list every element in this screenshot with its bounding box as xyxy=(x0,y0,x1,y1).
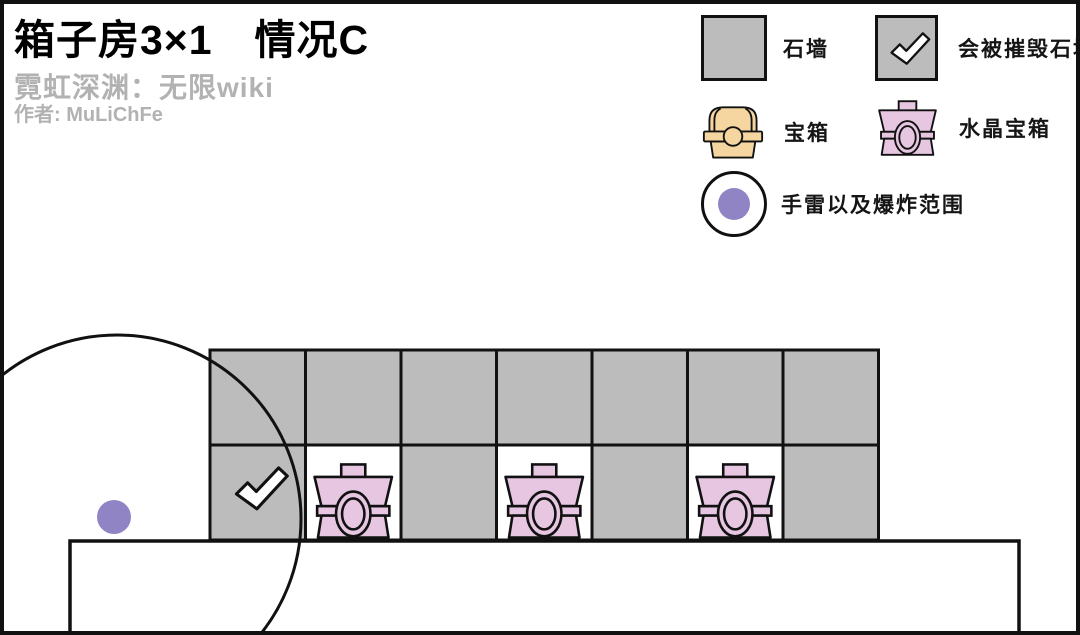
wall-tile xyxy=(688,350,784,445)
wall-tile xyxy=(210,350,306,445)
wall-tile xyxy=(401,350,497,445)
wall-tile xyxy=(783,445,879,540)
wall-tile xyxy=(497,350,593,445)
wall-tile xyxy=(783,350,879,445)
room-diagram xyxy=(4,4,1080,635)
wall-tile xyxy=(401,445,497,540)
wall-tile xyxy=(306,350,402,445)
wall-tile xyxy=(592,350,688,445)
wiki-diagram-canvas: 箱子房3×1 情况C 霓虹深渊：无限wiki 作者: MuLiChFe 石墙 会… xyxy=(0,0,1080,635)
room-grid xyxy=(210,350,879,540)
wall-tile xyxy=(592,445,688,540)
floor-platform xyxy=(70,541,1019,635)
grenade-marker xyxy=(97,500,131,534)
